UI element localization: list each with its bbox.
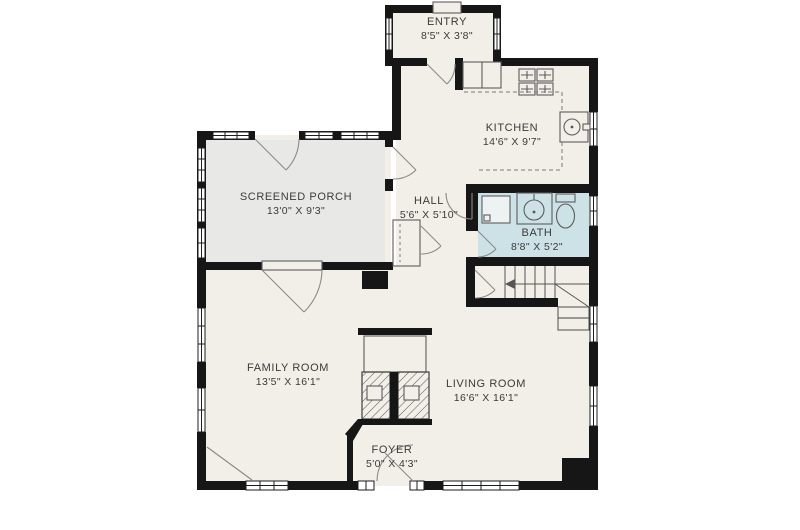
foyer-floor [347, 425, 445, 486]
floor-plan: ENTRY 8'5" X 3'8" KITCHEN 14'6" X 9'7" S… [0, 0, 800, 530]
shower-icon [482, 196, 510, 223]
kitchen-sink-icon [560, 112, 590, 142]
entry-front-door-icon [433, 2, 461, 13]
porch-floor [206, 140, 385, 262]
entry-floor [389, 9, 497, 66]
floor-plan-canvas [0, 0, 800, 530]
refrigerator-icon [463, 62, 501, 88]
